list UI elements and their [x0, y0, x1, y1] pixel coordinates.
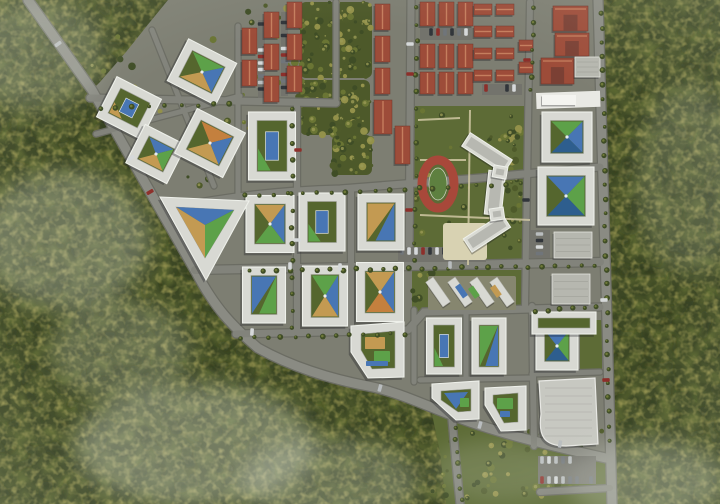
- masterplan-aerial-render: [0, 0, 720, 504]
- vignette-overlay: [0, 0, 720, 504]
- scene-svg: [0, 0, 720, 504]
